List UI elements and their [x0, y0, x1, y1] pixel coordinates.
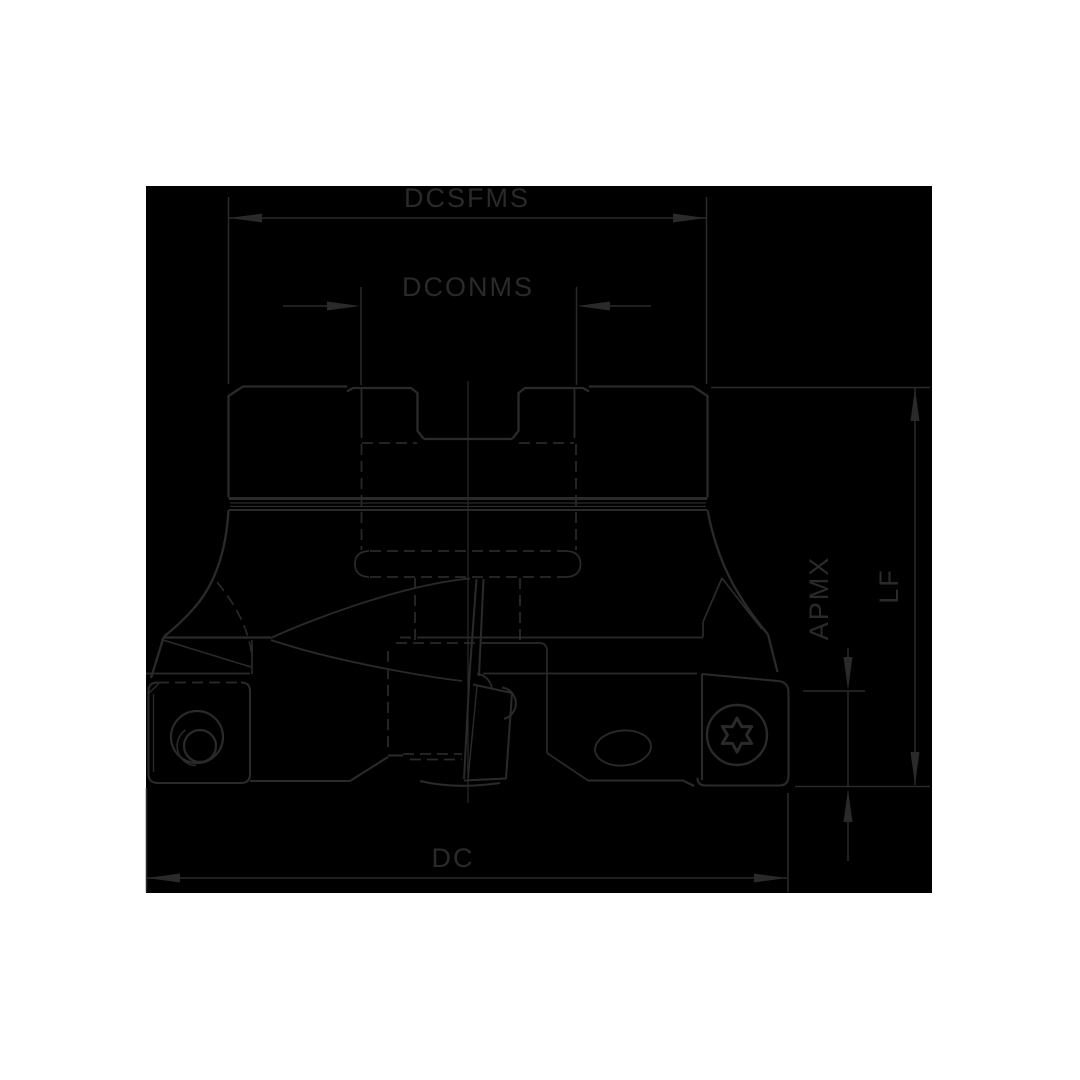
screenshot-stage: DCSFMS DCONMS DC LF APMX: [0, 0, 1080, 1080]
label-dcsfms: DCSFMS: [404, 183, 530, 213]
label-lf: LF: [874, 568, 904, 604]
label-dc: DC: [432, 843, 475, 873]
label-apmx: APMX: [804, 556, 834, 641]
milling-cutter-technical-drawing: DCSFMS DCONMS DC LF APMX: [0, 0, 1080, 1080]
label-dconms: DCONMS: [402, 272, 534, 302]
